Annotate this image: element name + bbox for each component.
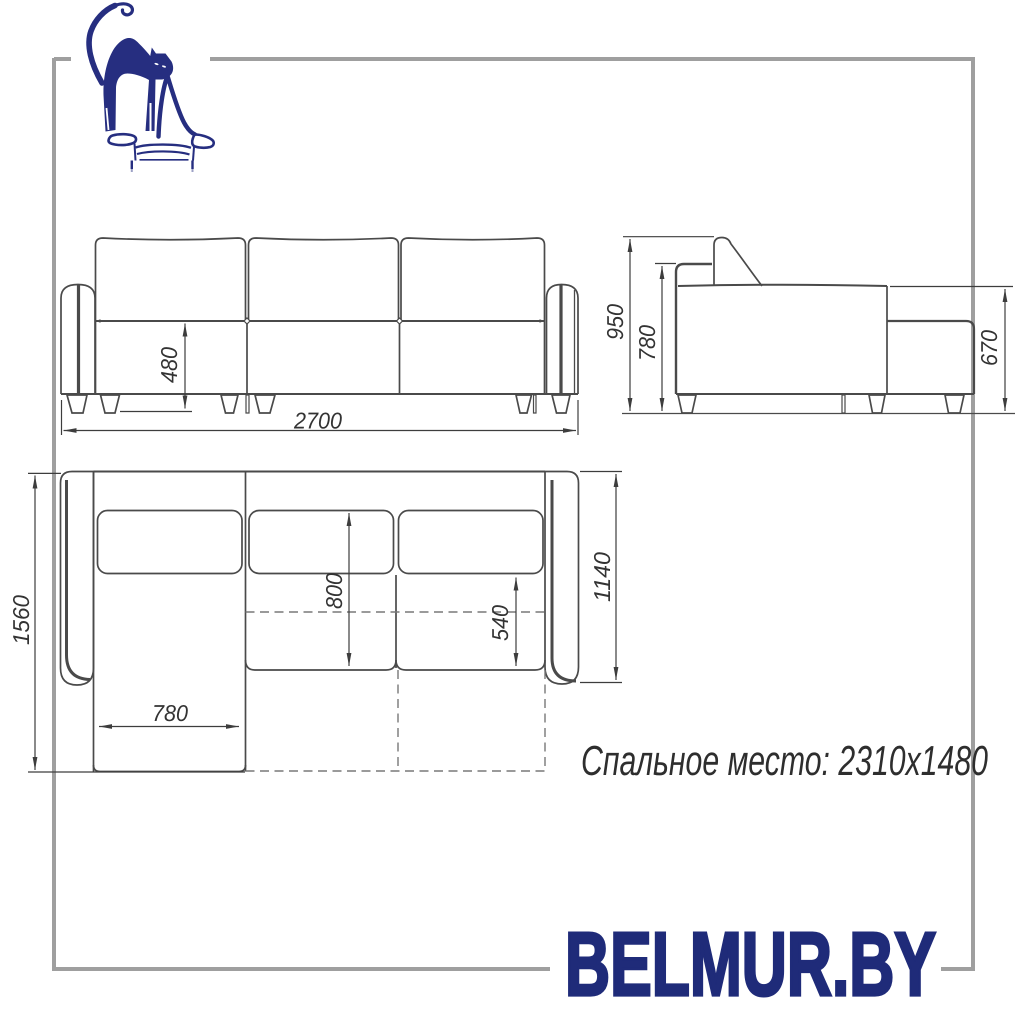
svg-text:480: 480	[156, 347, 182, 383]
svg-text:Спальное место: 2310х1480: Спальное место: 2310х1480	[581, 737, 988, 784]
svg-text:1140: 1140	[589, 552, 615, 602]
svg-text:780: 780	[152, 700, 188, 726]
svg-text:2700: 2700	[293, 408, 342, 434]
svg-text:540: 540	[487, 605, 513, 641]
svg-text:800: 800	[321, 573, 347, 609]
svg-text:780: 780	[634, 325, 660, 361]
svg-text:950: 950	[602, 304, 628, 340]
svg-text:670: 670	[976, 330, 1002, 366]
svg-text:1560: 1560	[8, 595, 34, 645]
svg-text:BELMUR.BY: BELMUR.BY	[565, 915, 936, 1015]
